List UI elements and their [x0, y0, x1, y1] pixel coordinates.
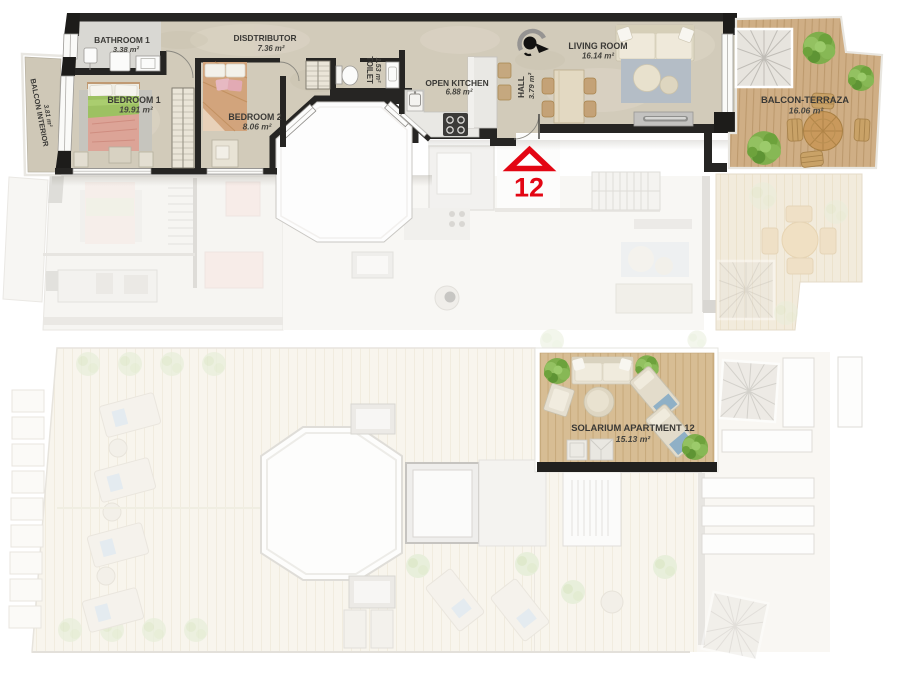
- svg-text:DISDTRIBUTOR: DISDTRIBUTOR: [233, 33, 296, 43]
- svg-text:12: 12: [514, 173, 544, 203]
- svg-text:SOLARIUM APARTMENT 12: SOLARIUM APARTMENT 12: [571, 422, 694, 433]
- svg-text:TOILET: TOILET: [365, 56, 374, 84]
- svg-text:16.06 m²: 16.06 m²: [789, 106, 825, 116]
- svg-text:6.88 m²: 6.88 m²: [446, 88, 473, 97]
- svg-text:1.53 m²: 1.53 m²: [374, 58, 383, 83]
- svg-text:3.38 m²: 3.38 m²: [113, 45, 140, 54]
- svg-text:19.91 m²: 19.91 m²: [119, 105, 153, 115]
- svg-text:BALCON-TERRAZA: BALCON-TERRAZA: [761, 94, 849, 105]
- svg-text:HALL: HALL: [517, 76, 526, 98]
- svg-text:3.79 m²: 3.79 m²: [527, 72, 536, 99]
- svg-text:BEDROOM 1: BEDROOM 1: [107, 95, 160, 105]
- svg-text:8.06 m²: 8.06 m²: [243, 122, 272, 132]
- svg-text:16.14 m²: 16.14 m²: [582, 52, 614, 61]
- svg-text:LIVING ROOM: LIVING ROOM: [568, 41, 627, 51]
- svg-text:BEDROOM 2: BEDROOM 2: [228, 112, 281, 122]
- svg-text:7.36 m²: 7.36 m²: [258, 44, 285, 53]
- svg-text:OPEN KITCHEN: OPEN KITCHEN: [425, 78, 488, 88]
- svg-text:BATHROOM 1: BATHROOM 1: [94, 35, 150, 45]
- svg-text:15.13 m²: 15.13 m²: [616, 434, 652, 444]
